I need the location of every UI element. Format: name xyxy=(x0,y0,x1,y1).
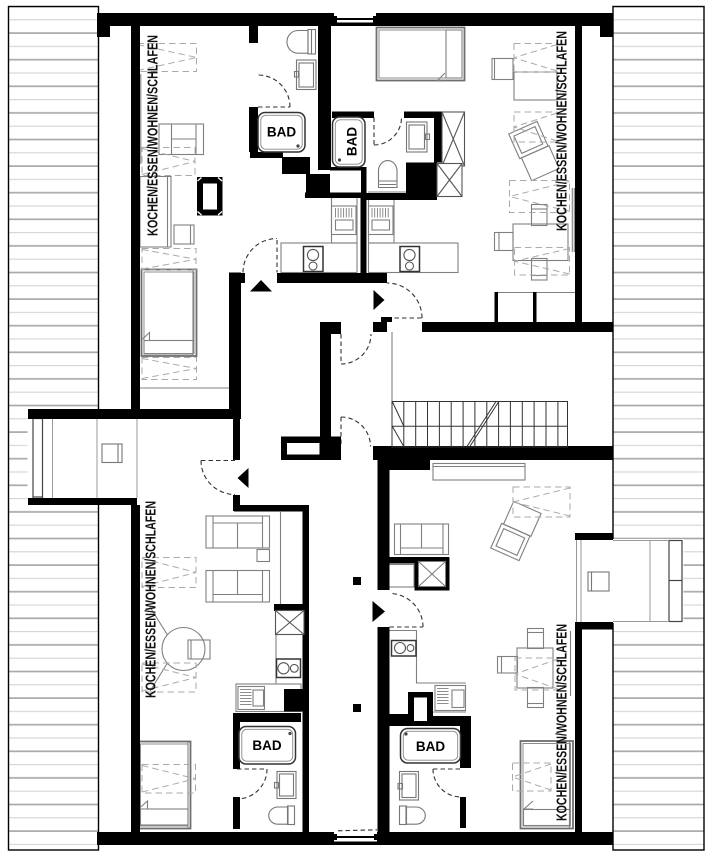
svg-text:KOCHEN/ESSEN/WOHNEN/SCHLAFEN: KOCHEN/ESSEN/WOHNEN/SCHLAFEN xyxy=(144,501,160,698)
svg-text:BAD: BAD xyxy=(267,125,296,140)
svg-text:BAD: BAD xyxy=(345,127,360,156)
svg-text:KOCHEN/ESSEN/WOHNEN/SCHLAFEN: KOCHEN/ESSEN/WOHNEN/SCHLAFEN xyxy=(555,624,571,821)
svg-text:BAD: BAD xyxy=(416,739,445,754)
svg-text:KOCHEN/ESSEN/WOHNEN/SCHLAFEN: KOCHEN/ESSEN/WOHNEN/SCHLAFEN xyxy=(146,35,162,236)
svg-text:KOCHEN/ESSEN/WOHNEN/SCHLAFEN: KOCHEN/ESSEN/WOHNEN/SCHLAFEN xyxy=(555,31,571,231)
svg-text:BAD: BAD xyxy=(252,738,281,753)
